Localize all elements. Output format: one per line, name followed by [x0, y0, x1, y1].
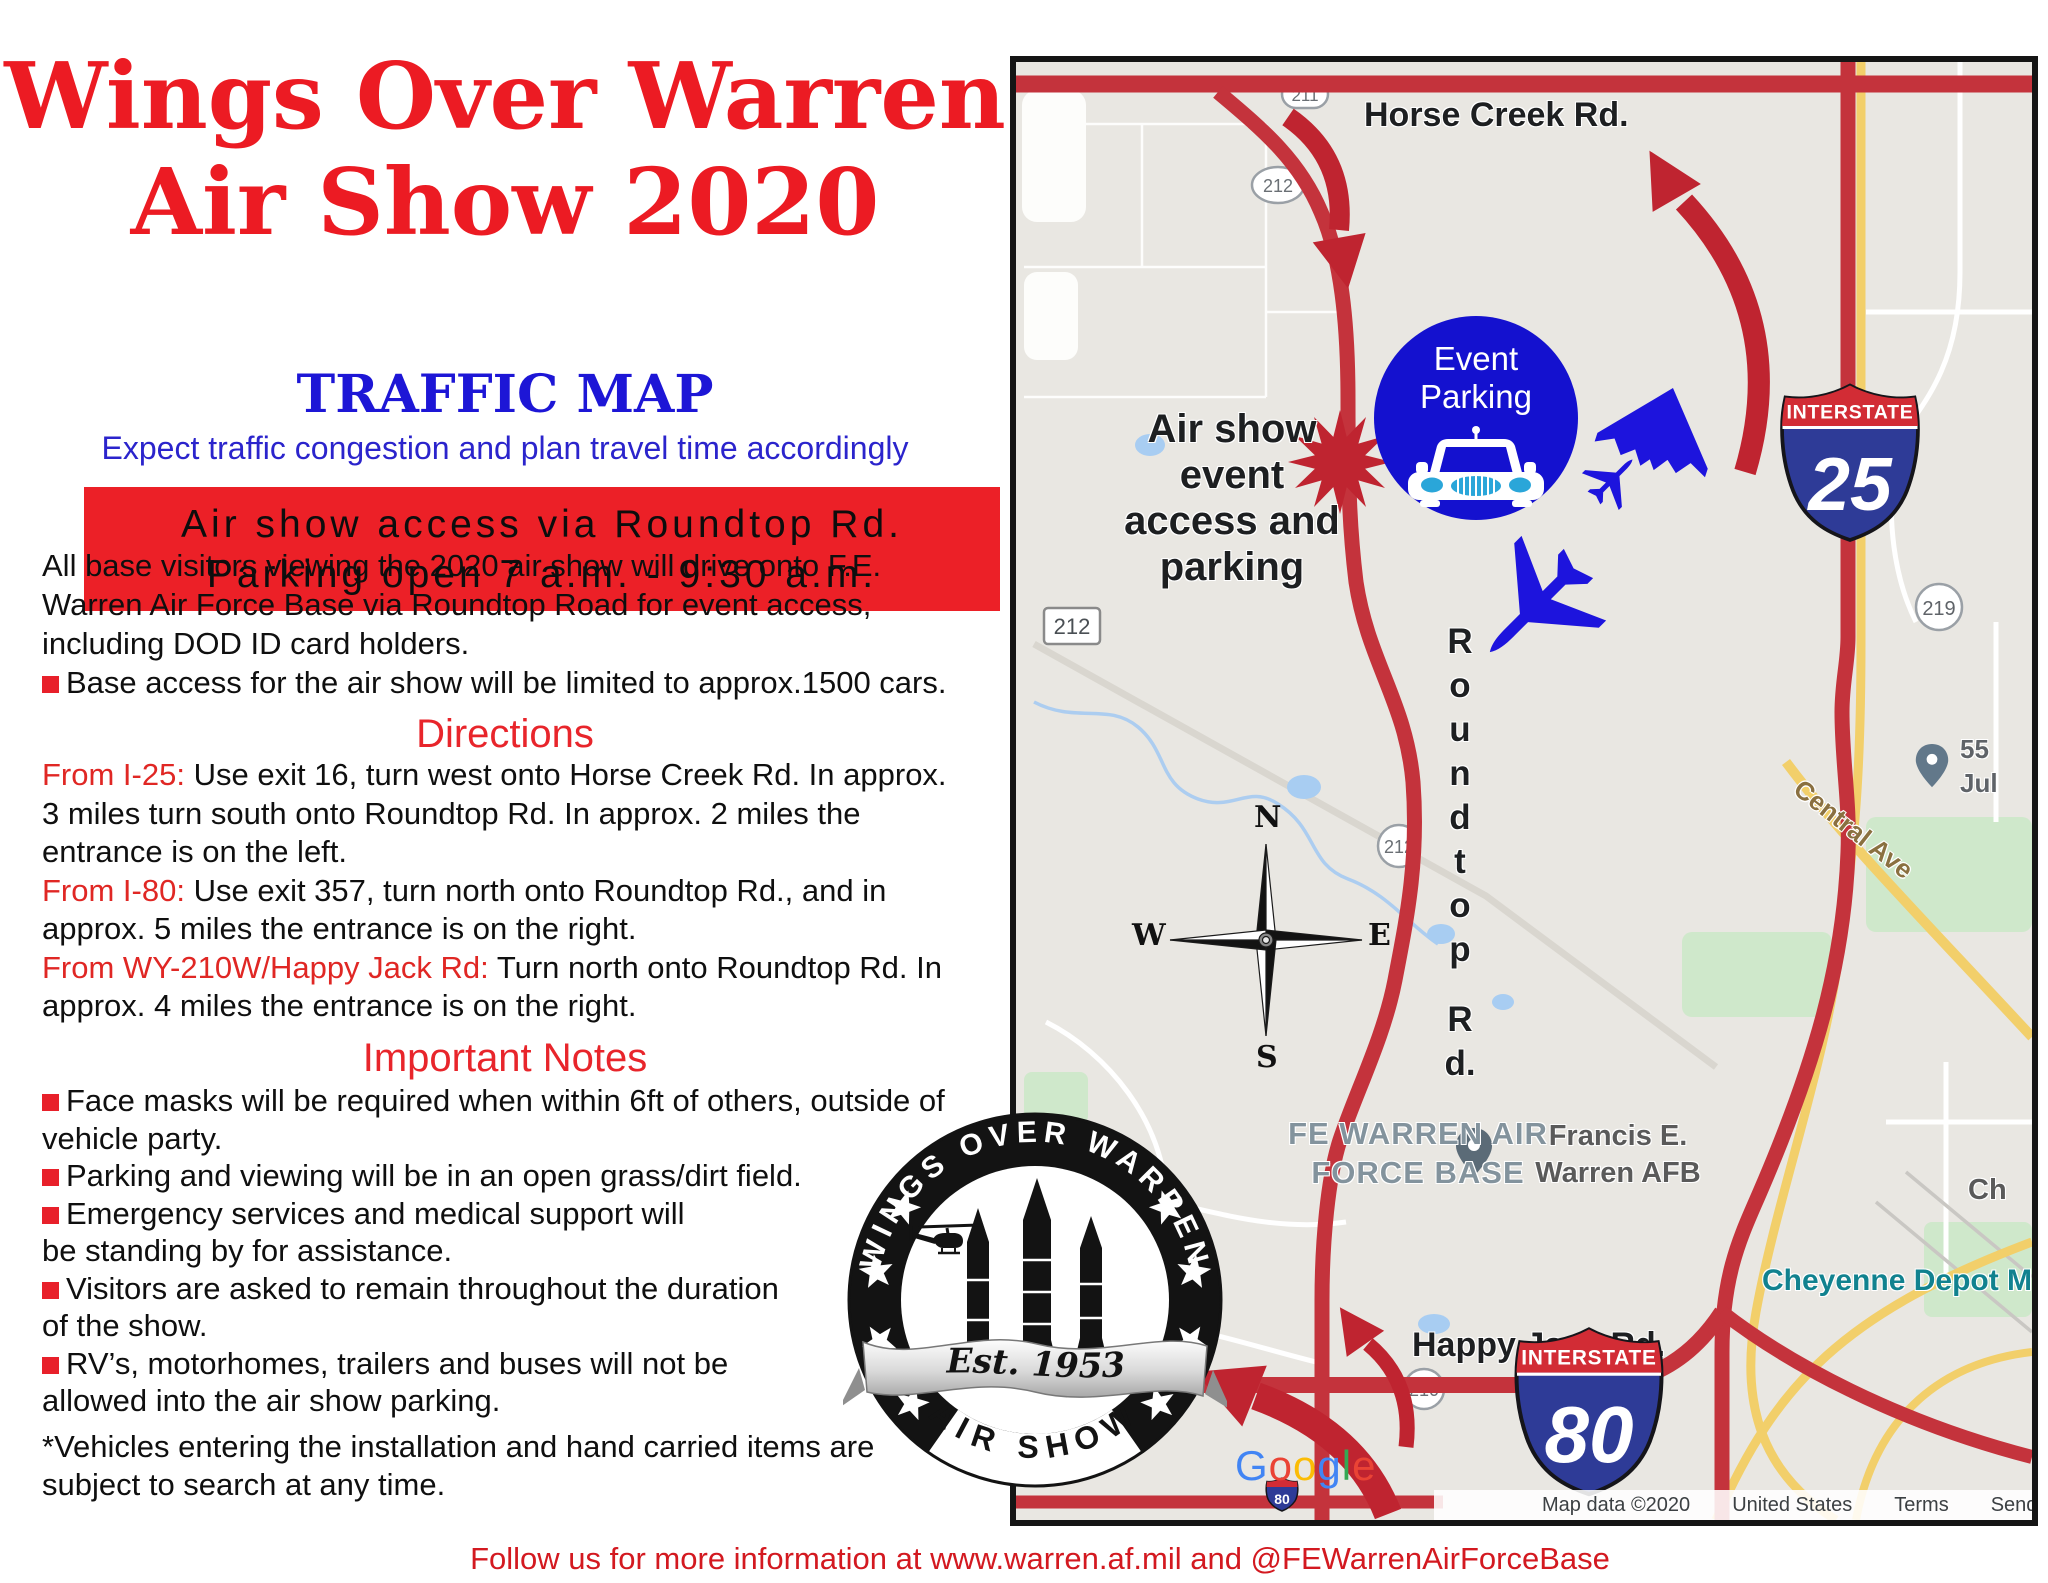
red-square-bullet-icon — [42, 676, 59, 693]
truncated-ch-label: Ch — [1968, 1174, 2007, 1207]
fe-warren-afb-label: FE WARREN AIR FORCE BASE — [1268, 1114, 1568, 1192]
car-icon — [1396, 418, 1556, 510]
arrow-happy-jack — [1368, 1344, 1407, 1447]
rt-letter: n — [1440, 754, 1480, 798]
red-square-bullet-icon — [42, 1357, 59, 1374]
note-text: Visitors are asked to remain throughout … — [66, 1271, 779, 1306]
direction-text: Use exit 357, turn north onto Roundtop R… — [185, 873, 886, 908]
compass-s-label: S — [1256, 1040, 1278, 1075]
direction-text: approx. 4 miles the entrance is on the r… — [42, 988, 637, 1023]
google-letter: G — [1235, 1442, 1269, 1489]
direction-line: From WY-210W/Happy Jack Rd: Turn north o… — [42, 949, 1017, 988]
rt-letter: d. — [1440, 1044, 1480, 1088]
google-letter: o — [1269, 1442, 1293, 1489]
rt-letter: o — [1440, 886, 1480, 930]
rt-letter: R — [1440, 622, 1480, 666]
building-block — [1024, 272, 1078, 360]
poi-jul-label: Jul — [1960, 768, 1998, 799]
note-text: RV’s, motorhomes, trailers and buses wil… — [66, 1346, 728, 1381]
arrow-i25-north — [1684, 202, 1759, 472]
i80-number: 80 — [1545, 1390, 1634, 1479]
direction-line: approx. 5 miles the entrance is on the r… — [42, 910, 1017, 949]
direction-line: 3 miles turn south onto Roundtop Rd. In … — [42, 795, 1017, 834]
ribbon-fold — [1205, 1370, 1227, 1410]
mini-i80-number: 80 — [1274, 1491, 1290, 1507]
map-attribution-bar: Map data ©2020 United States Terms Send … — [1434, 1490, 2032, 1520]
rt-letter: p — [1440, 930, 1480, 974]
route-shield-212-box-label: 212 — [1054, 614, 1091, 639]
access-line: parking — [1112, 544, 1352, 590]
note-text: Emergency services and medical support w… — [66, 1196, 685, 1231]
google-letter: o — [1293, 1442, 1317, 1489]
direction-line: approx. 4 miles the entrance is on the r… — [42, 987, 1017, 1026]
direction-line: From I-25: Use exit 16, turn west onto H… — [42, 756, 1017, 795]
wings-over-warren-seal: WINGS OVER WARREN AIR SHOW — [843, 1108, 1227, 1492]
direction-lead: From I-80: — [42, 873, 185, 908]
francis-line: Warren AFB — [1528, 1155, 1708, 1192]
compass-n-label: N — [1254, 800, 1281, 835]
francis-line: Francis E. — [1528, 1118, 1708, 1155]
access-line: Air show — [1112, 406, 1352, 452]
note-text: Parking and viewing will be in an open g… — [66, 1158, 802, 1193]
direction-line: entrance is on the left. — [42, 833, 1017, 872]
directions-heading: Directions — [0, 712, 1010, 757]
direction-text: approx. 5 miles the entrance is on the r… — [42, 911, 637, 946]
page-title: Wings Over Warren Air Show 2020 — [0, 44, 1010, 256]
fe-warren-line: FE WARREN AIR — [1268, 1114, 1568, 1153]
access-line: access and — [1112, 498, 1352, 544]
event-parking-line1: Event — [1374, 340, 1578, 378]
access-banner-line1: Air show access via Roundtop Rd. — [84, 500, 1000, 550]
direction-lead: From WY-210W/Happy Jack Rd: — [42, 950, 489, 985]
rt-letter: o — [1440, 666, 1480, 710]
route-shield-212-oval-label: 212 — [1263, 176, 1293, 196]
follow-us-footer: Follow us for more information at www.wa… — [0, 1541, 2048, 1577]
i80-shield: INTERSTATE 80 — [1509, 1324, 1669, 1498]
traffic-tagline: Expect traffic congestion and plan trave… — [0, 430, 1010, 467]
red-square-bullet-icon — [42, 1094, 59, 1111]
roundtop-rd-vertical-label: R o u n d t o p R d. — [1440, 622, 1480, 1088]
ribbon-fold — [843, 1368, 865, 1408]
terms-link[interactable]: Terms — [1894, 1494, 1948, 1517]
note-text: of the show. — [42, 1308, 207, 1343]
river — [1034, 702, 1438, 944]
note-text: allowed into the air show parking. — [42, 1383, 500, 1418]
i25-number: 25 — [1806, 442, 1893, 526]
directions-list: From I-25: Use exit 16, turn west onto H… — [42, 756, 1017, 1026]
direction-line: From I-80: Use exit 357, turn north onto… — [42, 872, 1017, 911]
direction-text: Use exit 16, turn west onto Horse Creek … — [185, 757, 947, 792]
traffic-map-heading: TRAFFIC MAP — [0, 364, 1010, 425]
note-text: Face masks will be required when within … — [66, 1083, 945, 1118]
intro-paragraph: All base visitors viewing the 2020 air s… — [42, 546, 1017, 702]
flyer: Wings Over Warren Air Show 2020 TRAFFIC … — [0, 0, 2048, 1583]
rt-letter: u — [1440, 710, 1480, 754]
i80-system-label: INTERSTATE — [1521, 1347, 1656, 1370]
air-show-access-label: Air show event access and parking — [1112, 406, 1352, 590]
i25-system-label: INTERSTATE — [1786, 402, 1913, 424]
horse-creek-label: Horse Creek Rd. — [1364, 96, 1614, 135]
map-region-label: United States — [1732, 1494, 1852, 1517]
poi-pin-icon — [1916, 744, 1948, 787]
access-line: event — [1112, 452, 1352, 498]
rt-letter: d — [1440, 798, 1480, 842]
direction-text: Turn north onto Roundtop Rd. In — [489, 950, 942, 985]
cheyenne-depot-label: Cheyenne Depot Mu — [1762, 1264, 2038, 1298]
page-title-line2: Air Show 2020 — [0, 150, 1010, 256]
building-block — [1022, 90, 1086, 222]
rt-gap — [1440, 974, 1480, 1000]
direction-text: 3 miles turn south onto Roundtop Rd. In … — [42, 796, 861, 831]
google-letter: e — [1352, 1442, 1376, 1489]
map-data-copyright: Map data ©2020 — [1542, 1494, 1690, 1517]
route-shield-219-label: 219 — [1922, 598, 1955, 620]
rt-letter: t — [1440, 842, 1480, 886]
b2-bomber-icon — [1592, 370, 1728, 486]
red-square-bullet-icon — [42, 1169, 59, 1186]
red-square-bullet-icon — [42, 1282, 59, 1299]
dirt-road — [1034, 644, 1716, 1067]
send-feedback-link[interactable]: Send feedback — [1991, 1494, 2032, 1517]
i25-shield: INTERSTATE 25 — [1775, 380, 1925, 544]
event-parking-line2: Parking — [1374, 378, 1578, 416]
intro-line: including DOD ID card holders. — [42, 624, 1017, 663]
note-text: vehicle party. — [42, 1121, 222, 1156]
rt-letter: R — [1440, 1000, 1480, 1044]
direction-text: entrance is on the left. — [42, 834, 347, 869]
intro-line: All base visitors viewing the 2020 air s… — [42, 546, 1017, 585]
poi-55-label: 55 — [1960, 734, 1989, 765]
google-logo[interactable]: Google — [1235, 1442, 1376, 1490]
event-parking-badge: Event Parking — [1374, 316, 1578, 520]
southeast-road — [1722, 1312, 2032, 1457]
roundtop-road — [1218, 92, 1415, 1520]
google-letter: l — [1342, 1442, 1352, 1489]
google-letter: g — [1317, 1442, 1341, 1489]
intro-bullet-text: Base access for the air show will be lim… — [66, 665, 946, 700]
intro-bullet-line: Base access for the air show will be lim… — [42, 663, 1017, 702]
red-square-bullet-icon — [42, 1207, 59, 1224]
compass-w-label: W — [1132, 918, 1166, 953]
page-title-line1: Wings Over Warren — [0, 44, 1010, 150]
francis-warren-label: Francis E. Warren AFB — [1528, 1118, 1708, 1192]
direction-lead: From I-25: — [42, 757, 185, 792]
notes-heading: Important Notes — [0, 1036, 1010, 1081]
intro-line: Warren Air Force Base via Roundtop Road … — [42, 585, 1017, 624]
compass-e-label: E — [1368, 918, 1391, 953]
note-text: be standing by for assistance. — [42, 1233, 452, 1268]
fe-warren-line: FORCE BASE — [1268, 1153, 1568, 1192]
